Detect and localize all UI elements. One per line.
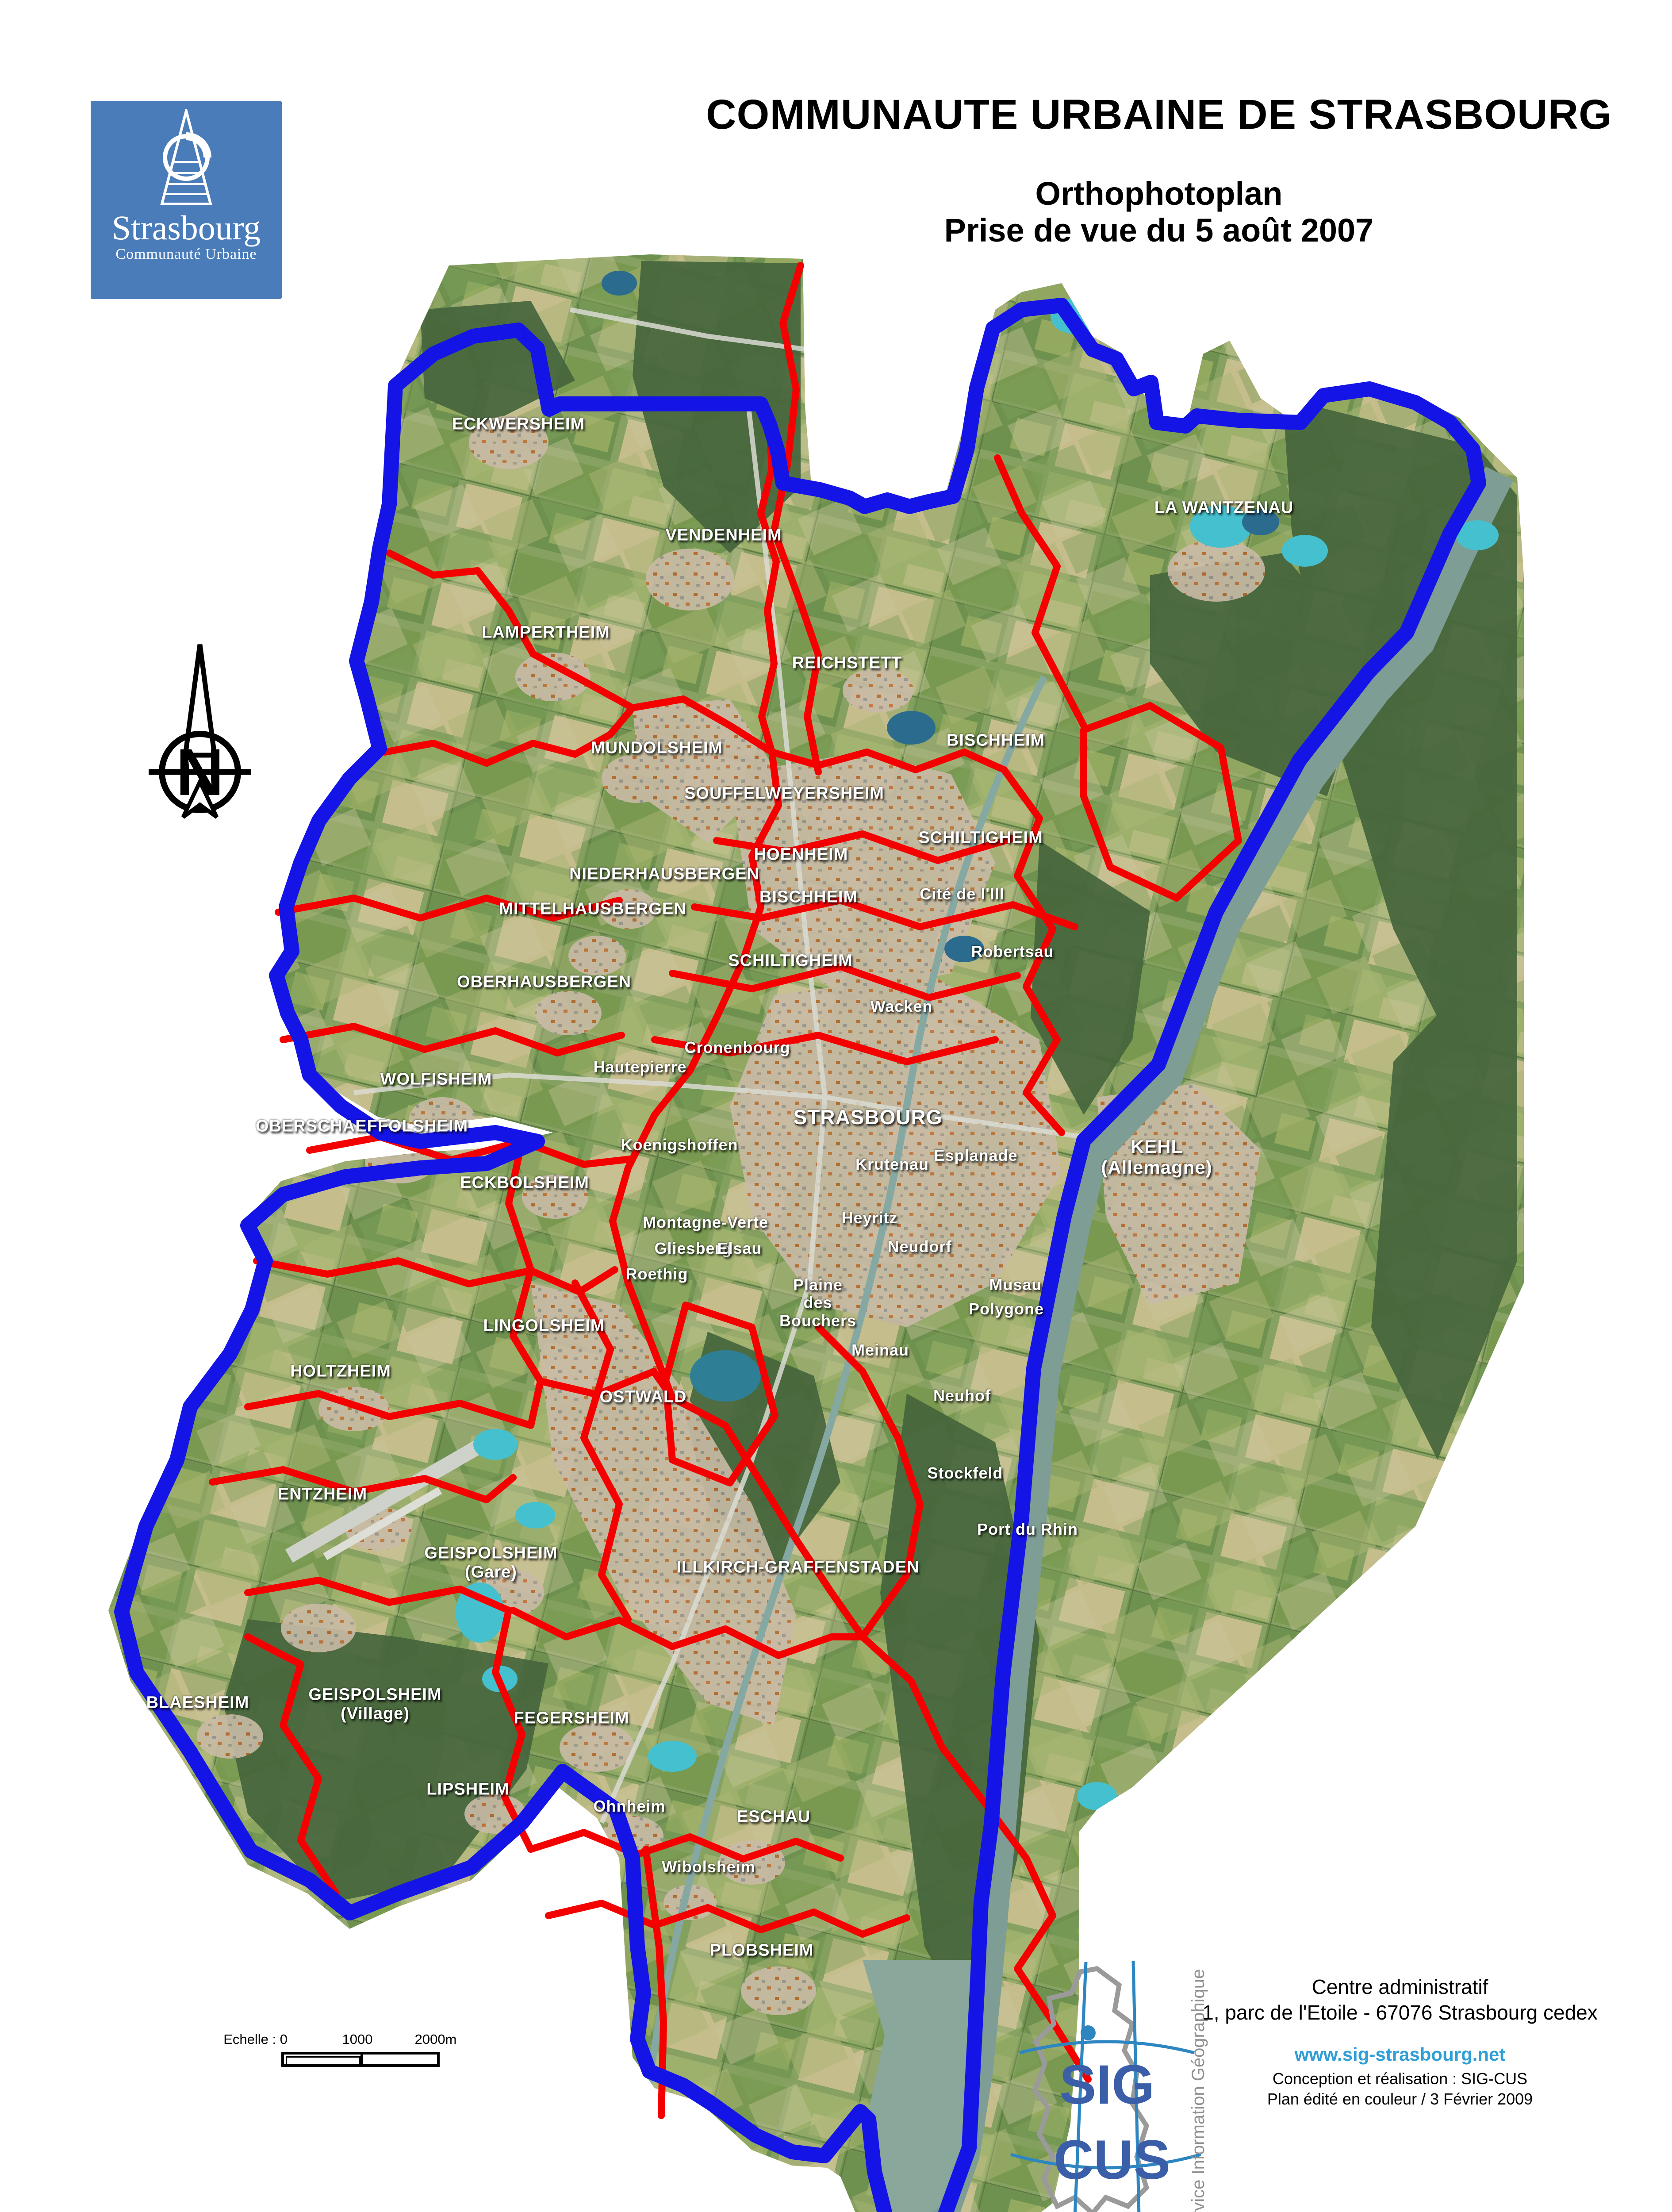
scale-start-label: Echelle : 0 — [221, 2032, 288, 2047]
scale-bar: Echelle : 0 1000 2000m — [221, 2032, 504, 2080]
scale-end-label: 2000m — [409, 2032, 462, 2047]
page-title: COMMUNAUTE URBAINE DE STRASBOURG — [706, 91, 1612, 139]
strasbourg-cus-logo: Strasbourg Communauté Urbaine — [91, 101, 282, 299]
credit-line-1: Conception et réalisation : SIG-CUS — [1112, 2069, 1672, 2089]
logo-city-name: Strasbourg — [91, 210, 282, 246]
page-date-line: Prise de vue du 5 août 2007 — [944, 211, 1374, 249]
svg-text:CUS: CUS — [1054, 2129, 1170, 2191]
page-subtitle: Orthophotoplan — [1035, 175, 1283, 212]
orthophoto-map — [0, 0, 1672, 2212]
address-line-2: 1, parc de l'Etoile - 67076 Strasbourg c… — [1112, 2000, 1672, 2025]
address-line-1: Centre administratif — [1112, 1974, 1672, 2000]
logo-subtitle: Communauté Urbaine — [91, 246, 282, 263]
north-arrow: N — [146, 639, 257, 825]
website-url: www.sig-strasbourg.net — [1112, 2043, 1672, 2066]
scale-mid-label: 1000 — [335, 2032, 380, 2047]
scale-bar-graphic — [281, 2052, 440, 2067]
footer-credits: Centre administratif 1, parc de l'Etoile… — [1112, 1974, 1672, 2109]
credit-line-2: Plan édité en couleur / 3 Février 2009 — [1112, 2089, 1672, 2109]
cathedral-spire-icon — [91, 109, 282, 213]
aerial-photo-mosaic — [0, 0, 1672, 2212]
